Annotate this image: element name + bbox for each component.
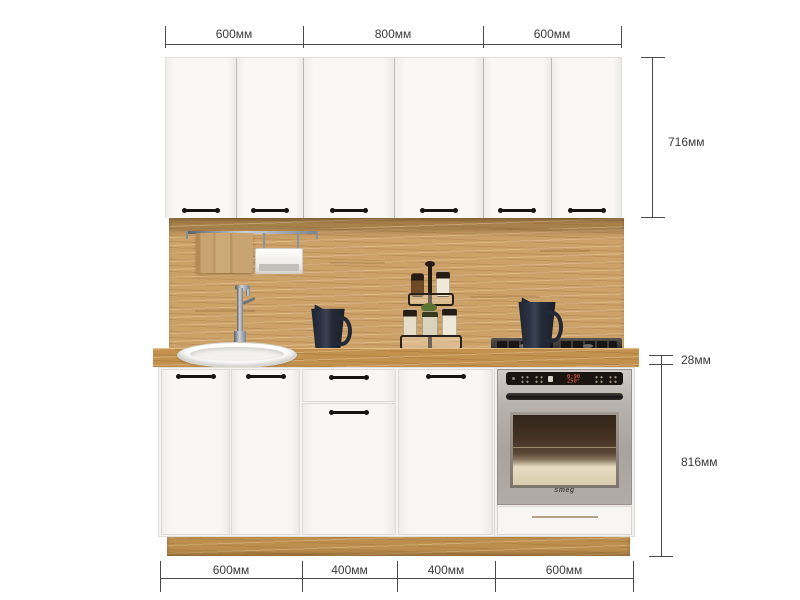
upper-cabinet-bottom-panel: [169, 218, 624, 229]
bottom-dim-label-4: 600мм: [495, 563, 633, 577]
oven-display: 0:90 250°: [560, 374, 588, 383]
faucet-spout-tip: [246, 289, 250, 296]
top-dim-label-1: 600мм: [165, 27, 303, 41]
door-handle-icon: [331, 411, 367, 414]
oven-lower-drawer: [497, 506, 632, 535]
oven-control-panel: 0:90 250°: [506, 372, 623, 385]
door-handle-icon: [253, 209, 287, 212]
upper-door: [483, 58, 552, 218]
base-door: [231, 369, 300, 535]
wood-grain-streak: [540, 250, 590, 252]
paper-towel-base: [259, 264, 299, 271]
drawer-handle-line: [532, 516, 598, 518]
right-dim-28-tbar: [649, 355, 673, 356]
door-handle-icon: [428, 375, 464, 378]
oven-window: [510, 412, 619, 488]
oven-brand-logo: smeg: [497, 487, 632, 494]
spice-rack: [399, 261, 463, 354]
upper-door: [551, 58, 621, 218]
door-handle-icon: [570, 209, 604, 212]
faucet-icon: [231, 285, 257, 350]
right-dim-816-line: [661, 364, 662, 556]
bottom-dim-label-1: 600мм: [160, 563, 302, 577]
door-handle-icon: [248, 375, 284, 378]
kitchen-towel: [196, 233, 253, 273]
upper-wall-cabinets: [165, 57, 622, 218]
top-dimension-line: [165, 44, 622, 45]
upper-door: [166, 58, 236, 218]
right-dim-label-28: 28мм: [681, 353, 711, 367]
upper-door: [303, 58, 394, 218]
plinth: [167, 537, 630, 556]
right-dim-716-tbar: [641, 217, 665, 218]
base-drawer: [302, 369, 396, 402]
button-dots-icon: [534, 375, 543, 383]
door-handle-icon: [178, 375, 214, 378]
base-door: [398, 369, 493, 535]
oven-handle-bar: [506, 393, 623, 400]
wood-grain-streak: [330, 262, 385, 264]
faucet-lever: [242, 297, 255, 305]
oven-glass: [513, 415, 616, 485]
bottom-dim-label-2: 400мм: [302, 563, 397, 577]
right-dim-816-tbar: [649, 556, 673, 557]
oven-rack-line: [513, 447, 616, 448]
bottom-dim-label-3: 400мм: [397, 563, 495, 577]
base-door: [302, 403, 396, 535]
kitchen-dimension-diagram: 600мм 800мм 600мм 716мм 28мм 816мм 600мм…: [0, 0, 800, 600]
door-handle-icon: [332, 209, 366, 212]
upper-door: [394, 58, 483, 218]
door-handle-icon: [184, 209, 218, 212]
rack-knob: [425, 261, 435, 267]
pitcher-right: [516, 300, 558, 350]
spice-jar: [422, 311, 438, 337]
indicator-dot-icon: [512, 377, 515, 380]
top-dim-label-3: 600мм: [483, 27, 621, 41]
rail-bracket: [186, 231, 188, 239]
button-dots-icon: [608, 375, 617, 383]
top-dim-tick: [621, 26, 622, 48]
sink-basin: [190, 347, 284, 361]
oven-display-temp: 250°: [560, 379, 588, 384]
paper-towel-holder: [255, 248, 303, 274]
spice-jar: [403, 309, 417, 337]
top-dim-label-2: 800мм: [303, 27, 483, 41]
upper-door: [236, 58, 304, 218]
right-dim-label-716: 716мм: [668, 135, 705, 149]
rail-bracket: [316, 231, 318, 239]
faucet-neck: [237, 288, 243, 334]
button-dots-icon: [594, 375, 603, 383]
door-handle-icon: [422, 209, 456, 212]
wood-grain-streak: [470, 296, 540, 298]
right-dim-label-816: 816мм: [681, 455, 718, 469]
right-dim-716-tbar: [641, 57, 665, 58]
spice-jar: [442, 308, 457, 337]
door-handle-icon: [500, 209, 534, 212]
pitcher-left: [309, 307, 347, 352]
base-door: [161, 369, 230, 535]
right-dim-716-line: [652, 57, 653, 217]
bottom-dim-tick: [633, 561, 634, 592]
sink: [177, 342, 297, 368]
clock-icon: [548, 376, 553, 382]
right-dim-28-line: [661, 355, 662, 364]
drawer-handle-icon: [331, 376, 367, 379]
button-dots-icon: [520, 375, 529, 383]
